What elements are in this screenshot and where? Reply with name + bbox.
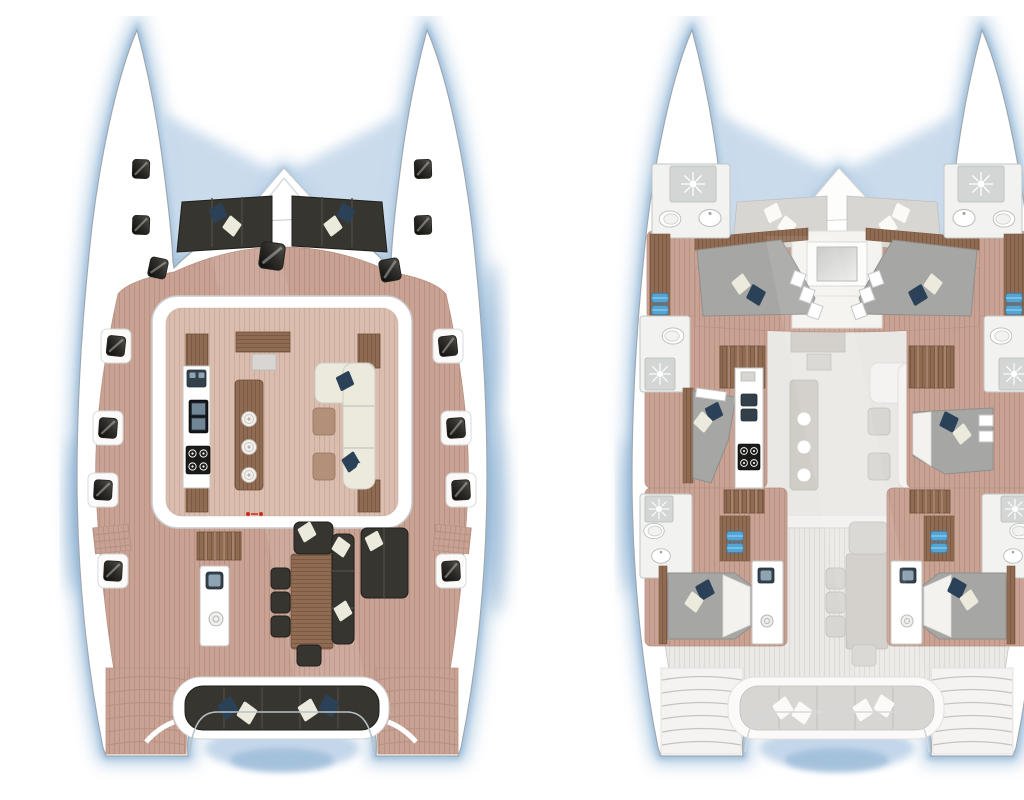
aft-bathroom-port bbox=[640, 494, 692, 578]
toilet-icon bbox=[993, 211, 1015, 227]
stairs-forward-starboard bbox=[909, 346, 954, 388]
deck-hatch-icon bbox=[378, 257, 402, 282]
upper-deck-plan bbox=[66, 30, 508, 772]
sink-icon bbox=[1004, 549, 1023, 563]
sink-icon bbox=[652, 549, 671, 563]
towel-icon bbox=[652, 294, 668, 303]
stern-water bbox=[230, 748, 334, 772]
deck-hatch-icon bbox=[414, 159, 432, 178]
towel-icon bbox=[931, 532, 947, 541]
mid-bathroom-starboard bbox=[984, 316, 1024, 392]
galley-down bbox=[735, 368, 763, 488]
aft-cabinet-port bbox=[752, 561, 783, 644]
forward-bathroom-starboard bbox=[944, 164, 1022, 238]
stairs-aft-port bbox=[724, 490, 764, 513]
deck-hatch-icon bbox=[132, 159, 150, 178]
sink-icon bbox=[209, 612, 223, 626]
wet-bar bbox=[200, 566, 229, 646]
deck-hatch-icon bbox=[93, 480, 112, 501]
towel-icon bbox=[1006, 306, 1022, 315]
bow-seat-starboard bbox=[292, 196, 387, 252]
deck-hatch-icon bbox=[98, 417, 117, 438]
floorplan-canvas bbox=[40, 16, 1024, 784]
towel-icon bbox=[727, 544, 743, 553]
toilet-icon bbox=[659, 211, 681, 227]
island-hob-icon bbox=[242, 468, 257, 483]
island-counter bbox=[235, 380, 263, 490]
boarding-steps-starboard bbox=[433, 524, 472, 554]
deck-hatch-icon bbox=[147, 256, 169, 279]
dining-chair bbox=[271, 568, 290, 589]
deck-hatch-icon bbox=[106, 335, 126, 357]
deck-hatch-icon bbox=[103, 561, 122, 582]
lower-deck-plan bbox=[621, 30, 1024, 772]
deck-hatch-icon bbox=[438, 335, 458, 357]
island-hob-icon bbox=[242, 412, 257, 427]
aft-cabin-port-bed bbox=[659, 566, 752, 644]
aft-bathroom-starboard bbox=[982, 494, 1024, 578]
deck-hatch-icon bbox=[132, 215, 150, 234]
dining-chair bbox=[271, 592, 290, 613]
bow-seat-port bbox=[177, 196, 272, 252]
toilet-icon bbox=[990, 328, 1012, 344]
forward-bathroom-port bbox=[652, 164, 730, 238]
fridge bbox=[189, 400, 208, 433]
forward-cabinet bbox=[236, 332, 290, 352]
deck-hatch-icon bbox=[258, 241, 285, 270]
aft-bench bbox=[185, 686, 379, 730]
dining-table bbox=[291, 554, 333, 649]
towel-icon bbox=[652, 306, 668, 315]
helm-seat bbox=[252, 354, 276, 370]
toilet-icon bbox=[662, 328, 684, 344]
shower-sunburst-icon bbox=[649, 499, 669, 519]
dining-chair bbox=[271, 616, 290, 637]
sink-icon bbox=[953, 210, 975, 227]
deck-hatch-icon bbox=[451, 480, 470, 501]
shower-sunburst-icon bbox=[649, 363, 671, 385]
ottoman bbox=[313, 453, 335, 480]
island-hob-icon bbox=[242, 440, 257, 455]
companionway-steps bbox=[197, 532, 241, 560]
mid-bathroom-port bbox=[640, 316, 690, 392]
stern-water bbox=[785, 748, 889, 772]
ghost-aft-bench bbox=[740, 686, 934, 730]
salon bbox=[152, 296, 412, 528]
galley-counter bbox=[183, 366, 210, 488]
watercolor-patch bbox=[484, 416, 508, 616]
stairs-aft-starboard bbox=[910, 490, 950, 513]
toilet-icon bbox=[644, 523, 664, 538]
towel-icon bbox=[727, 532, 743, 541]
deck-hatch-icon bbox=[441, 561, 460, 582]
dining-chair bbox=[297, 645, 321, 666]
shower-sunburst-icon bbox=[1003, 363, 1024, 385]
shower-sunburst-icon bbox=[681, 172, 705, 196]
towel-icon bbox=[1006, 294, 1022, 303]
boarding-steps-port bbox=[93, 524, 132, 554]
sink-icon bbox=[699, 210, 721, 227]
catamaran-floorplans bbox=[40, 16, 1024, 784]
stove bbox=[738, 444, 760, 470]
sun-lounger bbox=[361, 528, 408, 598]
stove bbox=[186, 446, 210, 474]
towel-icon bbox=[931, 544, 947, 553]
deck-hatch-icon bbox=[414, 215, 432, 234]
sink-icon bbox=[761, 615, 773, 627]
aft-cabin-starboard-bed bbox=[922, 566, 1015, 644]
shower-sunburst-icon bbox=[969, 172, 993, 196]
deck-hatch-icon bbox=[446, 417, 465, 438]
corner-cabinet bbox=[186, 334, 208, 368]
ottoman bbox=[313, 408, 335, 435]
